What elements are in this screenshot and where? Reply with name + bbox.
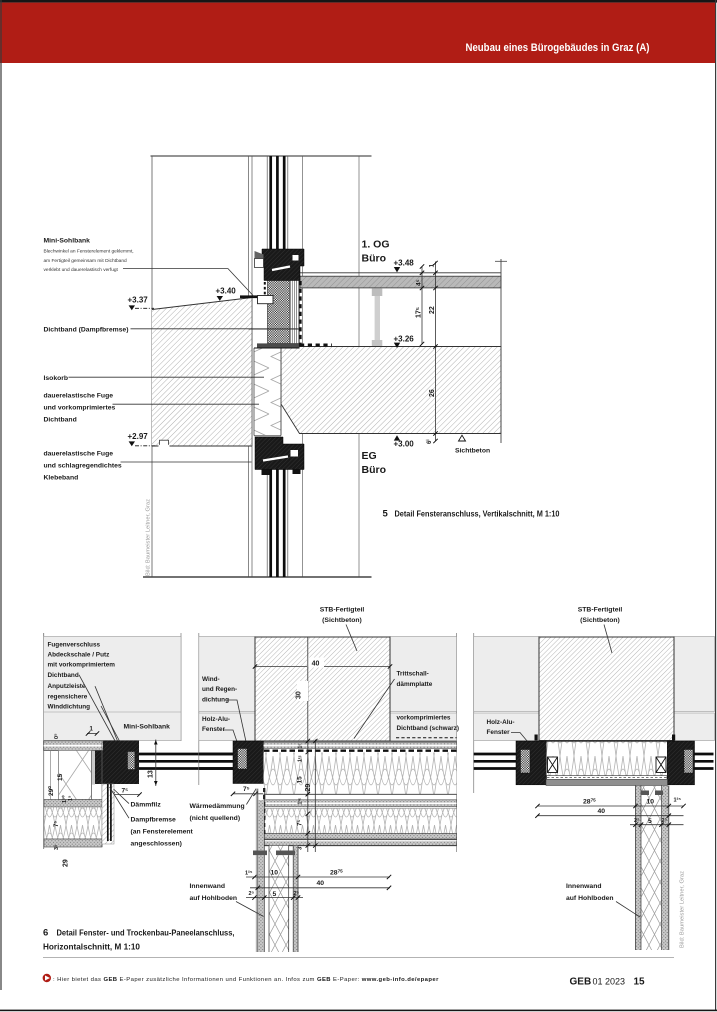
svg-text:10: 10 xyxy=(271,870,279,877)
svg-text:Neubau eines Bürogebäudes in G: Neubau eines Bürogebäudes in Graz (A) xyxy=(466,42,650,54)
svg-text:15: 15 xyxy=(57,773,64,781)
svg-text:Detail Fensteranschluss, Verti: Detail Fensteranschluss, Vertikalschnitt… xyxy=(395,509,560,519)
svg-text:1: 1 xyxy=(429,264,436,268)
svg-text:2⁵: 2⁵ xyxy=(662,818,668,824)
svg-text:dauerelastische Fuge: dauerelastische Fuge xyxy=(44,392,114,399)
svg-text:5: 5 xyxy=(383,509,389,520)
svg-text:40: 40 xyxy=(317,880,325,887)
svg-text:Innenwand: Innenwand xyxy=(190,883,226,890)
svg-text:15: 15 xyxy=(634,977,646,988)
svg-text:und schlagregendichtes: und schlagregendichtes xyxy=(44,462,122,469)
svg-text:1²⁵: 1²⁵ xyxy=(245,869,253,876)
svg-text:1¹⁵: 1¹⁵ xyxy=(298,797,304,804)
svg-text:verklebt und dauerelastisch ve: verklebt und dauerelastisch verfugt xyxy=(44,267,119,273)
svg-text:Büro: Büro xyxy=(362,464,387,476)
svg-text:auf Hohlboden: auf Hohlboden xyxy=(566,895,614,902)
svg-text:Fenster: Fenster xyxy=(487,729,511,736)
svg-text:Winddichtung: Winddichtung xyxy=(48,704,91,711)
svg-text:auf Hohlboden: auf Hohlboden xyxy=(190,895,238,902)
svg-text:5: 5 xyxy=(273,891,277,898)
svg-text:2⁵: 2⁵ xyxy=(249,891,255,897)
svg-text:13: 13 xyxy=(148,770,155,778)
svg-text:Wind-: Wind- xyxy=(202,676,220,683)
svg-text:dauerelastische Fuge: dauerelastische Fuge xyxy=(44,450,114,457)
svg-text:Holz-Alu-: Holz-Alu- xyxy=(202,716,230,723)
svg-text:(an Fensterelement: (an Fensterelement xyxy=(131,828,194,835)
svg-text:7⁵: 7⁵ xyxy=(243,786,250,793)
svg-text:regensichere: regensichere xyxy=(48,694,88,701)
svg-text:Dichtband (schwarz): Dichtband (schwarz) xyxy=(397,725,460,732)
svg-text:Wärmedämmung: Wärmedämmung xyxy=(190,803,245,810)
svg-text:Büro: Büro xyxy=(362,253,387,265)
svg-text:Bild: Baumeister Leitner, Graz: Bild: Baumeister Leitner, Graz xyxy=(146,499,152,576)
svg-text:40: 40 xyxy=(312,661,320,668)
svg-text:30: 30 xyxy=(296,691,303,699)
svg-text:40: 40 xyxy=(598,808,606,815)
svg-text:15: 15 xyxy=(297,776,304,784)
svg-text:Bild: Baumeister Leitner, Graz: Bild: Baumeister Leitner, Graz xyxy=(680,871,686,948)
svg-text:+3.40: +3.40 xyxy=(216,286,237,295)
svg-text:1²⁵: 1²⁵ xyxy=(674,797,682,804)
svg-text:(nicht quellend): (nicht quellend) xyxy=(190,815,241,822)
svg-text:7⁵: 7⁵ xyxy=(122,787,129,794)
svg-text:29⁰: 29⁰ xyxy=(47,786,55,796)
svg-text:7⁵: 7⁵ xyxy=(54,821,60,827)
svg-text:EG: EG xyxy=(362,450,377,462)
svg-text:Mini-Sohlbank: Mini-Sohlbank xyxy=(124,724,171,731)
svg-text:Dichtband (Dampfbremse): Dichtband (Dampfbremse) xyxy=(44,326,129,333)
svg-text:vorkomprimiertes: vorkomprimiertes xyxy=(397,715,451,722)
svg-text:+3.37: +3.37 xyxy=(128,296,149,305)
svg-text:+2.97: +2.97 xyxy=(128,432,149,441)
svg-text:mit vorkomprimiertem: mit vorkomprimiertem xyxy=(48,662,116,669)
svg-text:7⁵: 7⁵ xyxy=(298,820,304,826)
svg-text:dämmplatte: dämmplatte xyxy=(397,681,433,688)
svg-text:1²⁵: 1²⁵ xyxy=(298,755,304,762)
svg-text:Anputzleiste: Anputzleiste xyxy=(48,683,86,690)
svg-text:6: 6 xyxy=(43,928,48,939)
svg-text:Dämmfilz: Dämmfilz xyxy=(131,801,162,808)
svg-text:dichtung: dichtung xyxy=(202,696,229,703)
svg-text:: Hier bietet das GEB E-Paper: : Hier bietet das GEB E-Paper zusätzlich… xyxy=(53,977,439,983)
svg-text:+3.00: +3.00 xyxy=(394,440,415,449)
svg-text:1. OG: 1. OG xyxy=(362,239,390,251)
svg-text:Abdeckschale / Putz: Abdeckschale / Putz xyxy=(48,652,110,659)
svg-text:1⁵: 1⁵ xyxy=(68,795,74,801)
svg-text:5: 5 xyxy=(648,818,652,825)
svg-text:+3.48: +3.48 xyxy=(394,259,415,268)
svg-text:26: 26 xyxy=(429,389,436,397)
svg-text:Fenster: Fenster xyxy=(202,726,226,733)
svg-text:29: 29 xyxy=(305,784,312,792)
svg-text:4⁵: 4⁵ xyxy=(416,279,423,286)
svg-text:22: 22 xyxy=(429,306,436,314)
svg-text:Isokorb: Isokorb xyxy=(44,375,69,382)
svg-text:1⁵: 1⁵ xyxy=(298,743,304,749)
svg-text:3⁵: 3⁵ xyxy=(54,844,60,850)
svg-text:29: 29 xyxy=(63,859,70,867)
svg-text:Innenwand: Innenwand xyxy=(566,883,602,890)
svg-text:Fugenverschluss: Fugenverschluss xyxy=(48,642,101,649)
svg-text:+3.26: +3.26 xyxy=(394,335,415,344)
svg-text:2⁵: 2⁵ xyxy=(634,818,640,824)
svg-text:Mini-Sohlbank: Mini-Sohlbank xyxy=(44,238,91,245)
svg-text:und Regen-: und Regen- xyxy=(202,686,237,693)
svg-text:01 2023: 01 2023 xyxy=(593,977,626,987)
svg-text:10: 10 xyxy=(647,799,655,806)
svg-text:2⁵: 2⁵ xyxy=(294,891,300,897)
svg-text:Detail Fenster- und Trockenbau: Detail Fenster- und Trockenbau-Paneelans… xyxy=(57,928,235,938)
svg-text:(Sichtbeton): (Sichtbeton) xyxy=(580,617,620,624)
svg-text:Horizontalschnitt, M 1:10: Horizontalschnitt, M 1:10 xyxy=(43,942,140,952)
svg-text:Holz-Alu-: Holz-Alu- xyxy=(487,719,515,726)
svg-text:GEB: GEB xyxy=(570,977,592,988)
svg-text:Dichtband: Dichtband xyxy=(48,672,79,679)
svg-text:(Sichtbeton): (Sichtbeton) xyxy=(322,617,362,624)
svg-text:0⁵: 0⁵ xyxy=(54,733,60,739)
svg-text:Dichtband: Dichtband xyxy=(44,416,77,423)
svg-text:Dampfbremse: Dampfbremse xyxy=(131,816,177,823)
svg-text:Klebeband: Klebeband xyxy=(44,474,79,481)
svg-text:17⁵: 17⁵ xyxy=(416,307,423,318)
svg-text:Sichtbeton: Sichtbeton xyxy=(455,448,490,455)
svg-text:STB-Fertigteil: STB-Fertigteil xyxy=(320,607,365,614)
svg-text:angeschlossen): angeschlossen) xyxy=(131,840,182,847)
svg-text:STB-Fertigteil: STB-Fertigteil xyxy=(578,607,623,614)
svg-text:Trittschall-: Trittschall- xyxy=(397,671,429,678)
svg-text:und vorkomprimiertes: und vorkomprimiertes xyxy=(44,404,116,411)
svg-text:am Fertigteil gemeinsam mit Di: am Fertigteil gemeinsam mit Dichtband xyxy=(44,258,128,264)
svg-text:Blechwinkel an Fensterelement: Blechwinkel an Fensterelement geklemmt, xyxy=(44,249,134,255)
